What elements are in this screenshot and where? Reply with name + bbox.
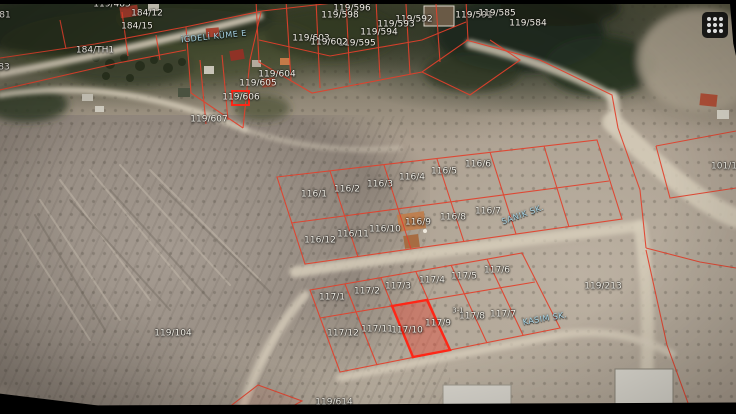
parcel-label: 119/584 xyxy=(509,20,546,29)
label-layer: 119/485184/12184/15184/TH18183119/596119… xyxy=(0,0,736,414)
parcel-label: 116/8 xyxy=(440,214,466,223)
street-label: İĞDELİ KÜME E xyxy=(181,30,248,45)
parcel-label: 116/11 xyxy=(337,231,369,240)
parcel-label: 117/12 xyxy=(327,330,359,339)
parcel-label: 116/5 xyxy=(431,168,457,177)
parcel-label: 119/585 xyxy=(478,10,515,19)
parcel-label: 117/3 xyxy=(385,283,411,292)
parcel-label: 119/607 xyxy=(190,116,227,125)
parcel-label: 116/1 xyxy=(301,191,327,200)
parcel-label: 117/4 xyxy=(419,277,445,286)
map-viewport[interactable]: 119/485184/12184/15184/TH18183119/596119… xyxy=(0,0,736,414)
parcel-label: 119/602 xyxy=(310,39,347,48)
parcel-label: 117/7 xyxy=(490,311,516,320)
parcel-label: 117/10 xyxy=(391,327,423,336)
parcel-label: 3-1 xyxy=(452,308,463,315)
parcel-label: 117/2 xyxy=(354,288,380,297)
parcel-label: 116/10 xyxy=(369,226,401,235)
parcel-label: 117/11 xyxy=(361,326,393,335)
parcel-label: 119/104 xyxy=(154,330,191,339)
parcel-label: 116/3 xyxy=(367,181,393,190)
parcel-label: 116/2 xyxy=(334,186,360,195)
parcel-label: 184/15 xyxy=(121,23,153,32)
parcel-label: 119/213 xyxy=(584,283,621,292)
parcel-label: 119/605 xyxy=(239,80,276,89)
parcel-label: 116/7 xyxy=(475,208,501,217)
parcel-label: 184/TH1 xyxy=(76,47,114,56)
parcel-label: 117/9 xyxy=(425,320,451,329)
parcel-label: 101/1 xyxy=(711,163,736,172)
parcel-label: 119/485 xyxy=(93,1,130,10)
parcel-label: 117/6 xyxy=(484,267,510,276)
parcel-label: 116/12 xyxy=(304,237,336,246)
parcel-label: 116/6 xyxy=(465,161,491,170)
parcel-label: 83 xyxy=(0,64,10,73)
screen: 119/485184/12184/15184/TH18183119/596119… xyxy=(0,0,736,414)
street-label: KASIM SK. xyxy=(522,311,568,327)
parcel-label: 119/598 xyxy=(321,12,358,21)
parcel-label: 119/594 xyxy=(360,29,397,38)
parcel-label: 117/5 xyxy=(451,273,477,282)
parcel-label: 119/614 xyxy=(315,399,352,408)
parcel-label: 81 xyxy=(0,12,11,21)
parcel-label: 116/4 xyxy=(399,174,425,183)
parcel-label: 117/1 xyxy=(319,294,345,303)
parcel-label: 184/12 xyxy=(131,10,163,19)
street-label: SANIK SK. xyxy=(501,204,545,227)
parcel-label: 116/9 xyxy=(405,219,431,228)
parcel-label: 119/606 xyxy=(222,94,259,103)
apps-grid-icon[interactable] xyxy=(702,12,728,38)
